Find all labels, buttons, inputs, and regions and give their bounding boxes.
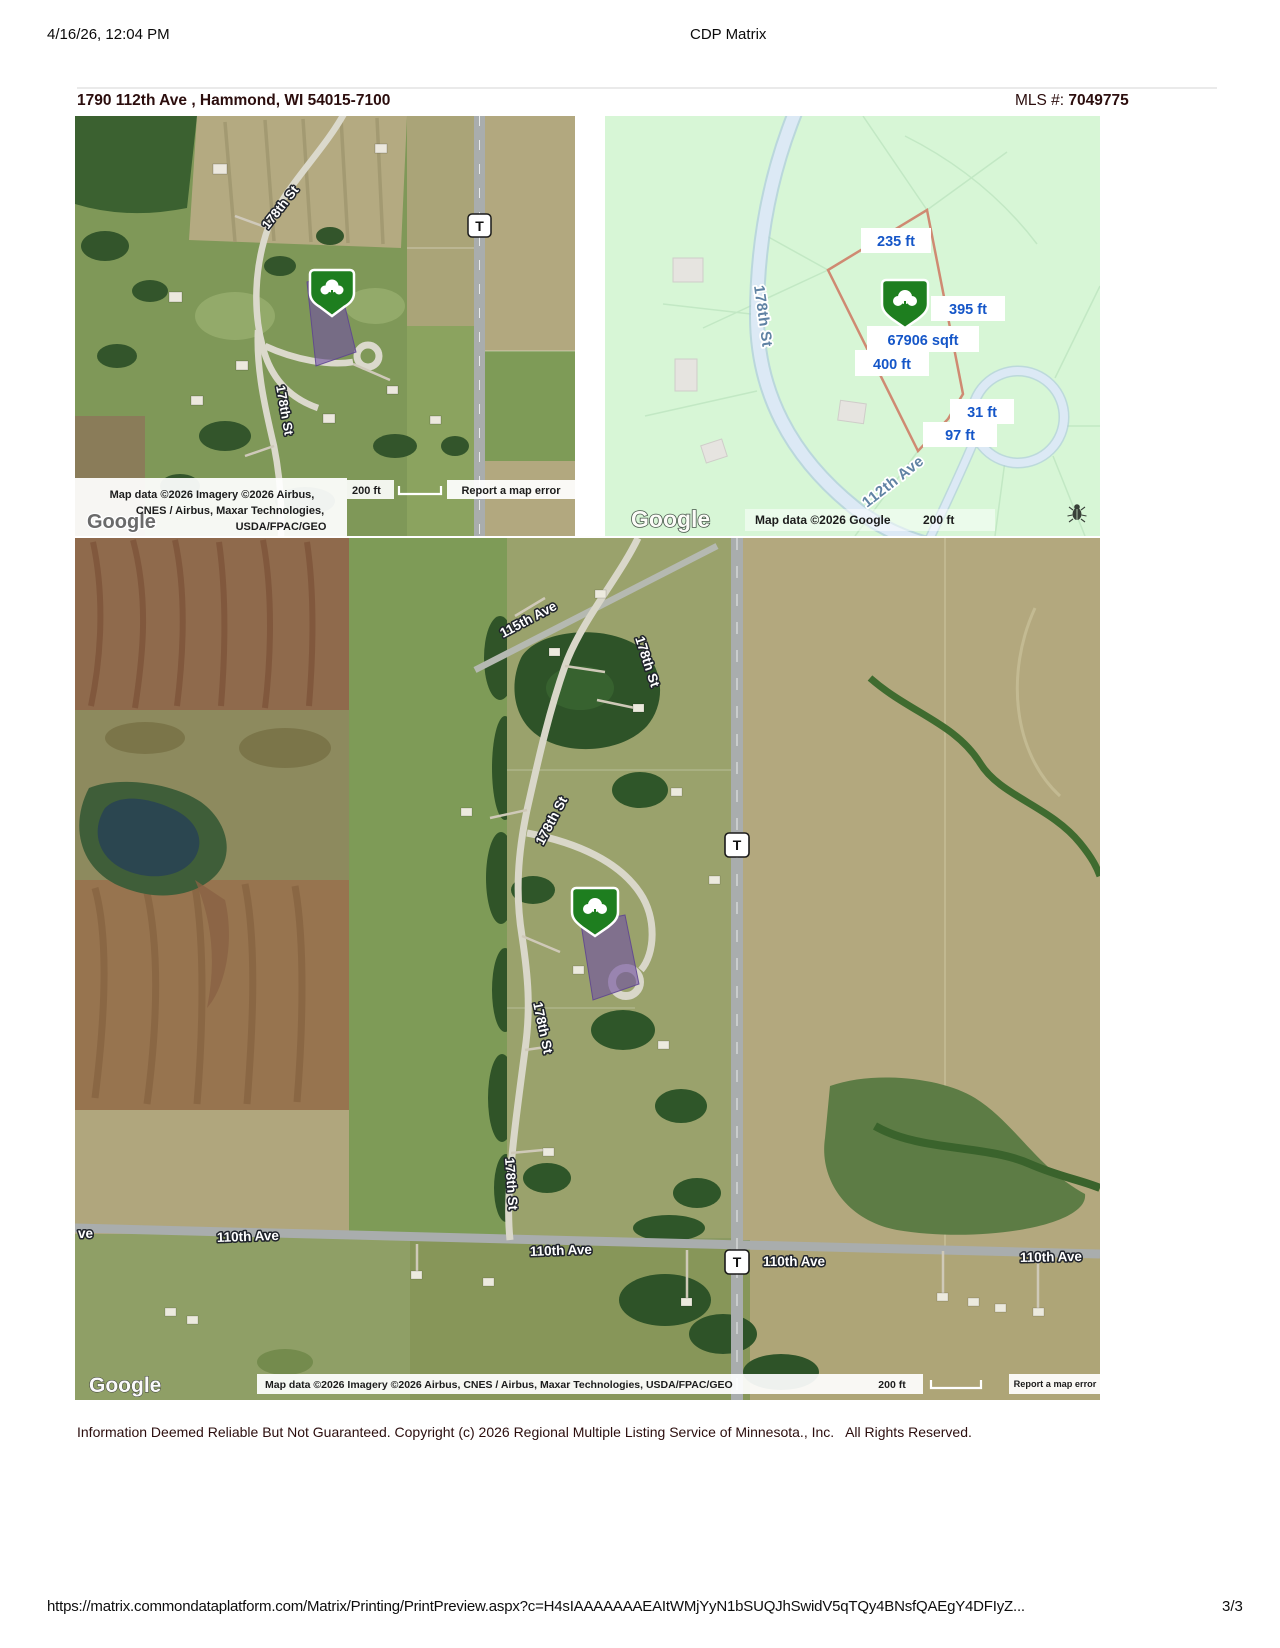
highway-shield-t-lower: T (725, 1250, 749, 1274)
plat-background (605, 116, 1100, 536)
street-label-110th-partial: ve (78, 1226, 94, 1241)
mls-label: MLS #: (1015, 92, 1064, 109)
disclaimer-text: Information Deemed Reliable But Not Guar… (77, 1424, 972, 1440)
google-logo[interactable]: Google (89, 1374, 161, 1397)
highway-shield-t-label: T (475, 218, 484, 234)
map-attribution: Map data ©2026 Imagery ©2026 Airbus, CNE… (265, 1379, 733, 1391)
scale-label: 200 ft (923, 513, 954, 527)
print-timestamp: 4/16/26, 12:04 PM (47, 26, 170, 43)
google-logo[interactable]: Google (631, 506, 710, 532)
scale-label: 200 ft (878, 1379, 906, 1391)
page-number: 3/3 (1222, 1598, 1243, 1615)
road-highway-t (474, 116, 485, 536)
scale-label: 200 ft (352, 485, 381, 497)
map-attribution-line1: Map data ©2026 Imagery ©2026 Airbus, (110, 489, 315, 501)
large-map-terrain (75, 538, 1100, 1400)
dimension-bottom: 97 ft (945, 428, 975, 444)
print-footer-url: https://matrix.commondataplatform.com/Ma… (47, 1598, 1025, 1615)
map-attribution-line2: CNES / Airbus, Maxar Technologies, (136, 505, 324, 517)
report-map-error-link[interactable]: Report a map error (461, 485, 561, 497)
dimension-right-small: 31 ft (967, 405, 997, 421)
mls-number: 7049775 (1068, 92, 1128, 109)
street-label-110th-d: 110th Ave (1020, 1249, 1083, 1265)
street-label-110th-a: 110th Ave (217, 1228, 280, 1245)
dimension-top: 235 ft (877, 234, 915, 250)
report-map-error-link[interactable]: Report a map error (1014, 1379, 1097, 1389)
listing-address: 1790 112th Ave , Hammond, WI 54015-7100 (77, 92, 390, 110)
dimension-left: 400 ft (873, 357, 911, 373)
print-page-title: CDP Matrix (690, 26, 766, 43)
dimension-right: 395 ft (949, 302, 987, 318)
header-divider (77, 87, 1217, 89)
highway-shield-t-label: T (733, 837, 742, 853)
satellite-map-large[interactable]: T T 115th Ave 178th St 178th St 178th St… (75, 538, 1100, 1400)
parcel-area: 67906 sqft (888, 333, 959, 349)
parcel-map[interactable]: 178th St 112th Ave 235 ft 395 ft 67906 s… (605, 116, 1100, 536)
highway-shield-t-upper: T (725, 833, 749, 857)
mls-number-field: MLS #: 7049775 (1015, 92, 1129, 110)
map-attribution-line3: USDA/FPAC/GEO (236, 521, 327, 533)
map-attribution: Map data ©2026 Google (755, 513, 891, 527)
highway-shield-t-label: T (733, 1254, 742, 1270)
satellite-map-small[interactable]: T 178th St 178th St Google Map data ©202… (75, 116, 575, 536)
street-label-110th-b: 110th Ave (530, 1242, 593, 1259)
highway-shield-t: T (468, 214, 491, 237)
street-label-110th-c: 110th Ave (763, 1254, 826, 1269)
